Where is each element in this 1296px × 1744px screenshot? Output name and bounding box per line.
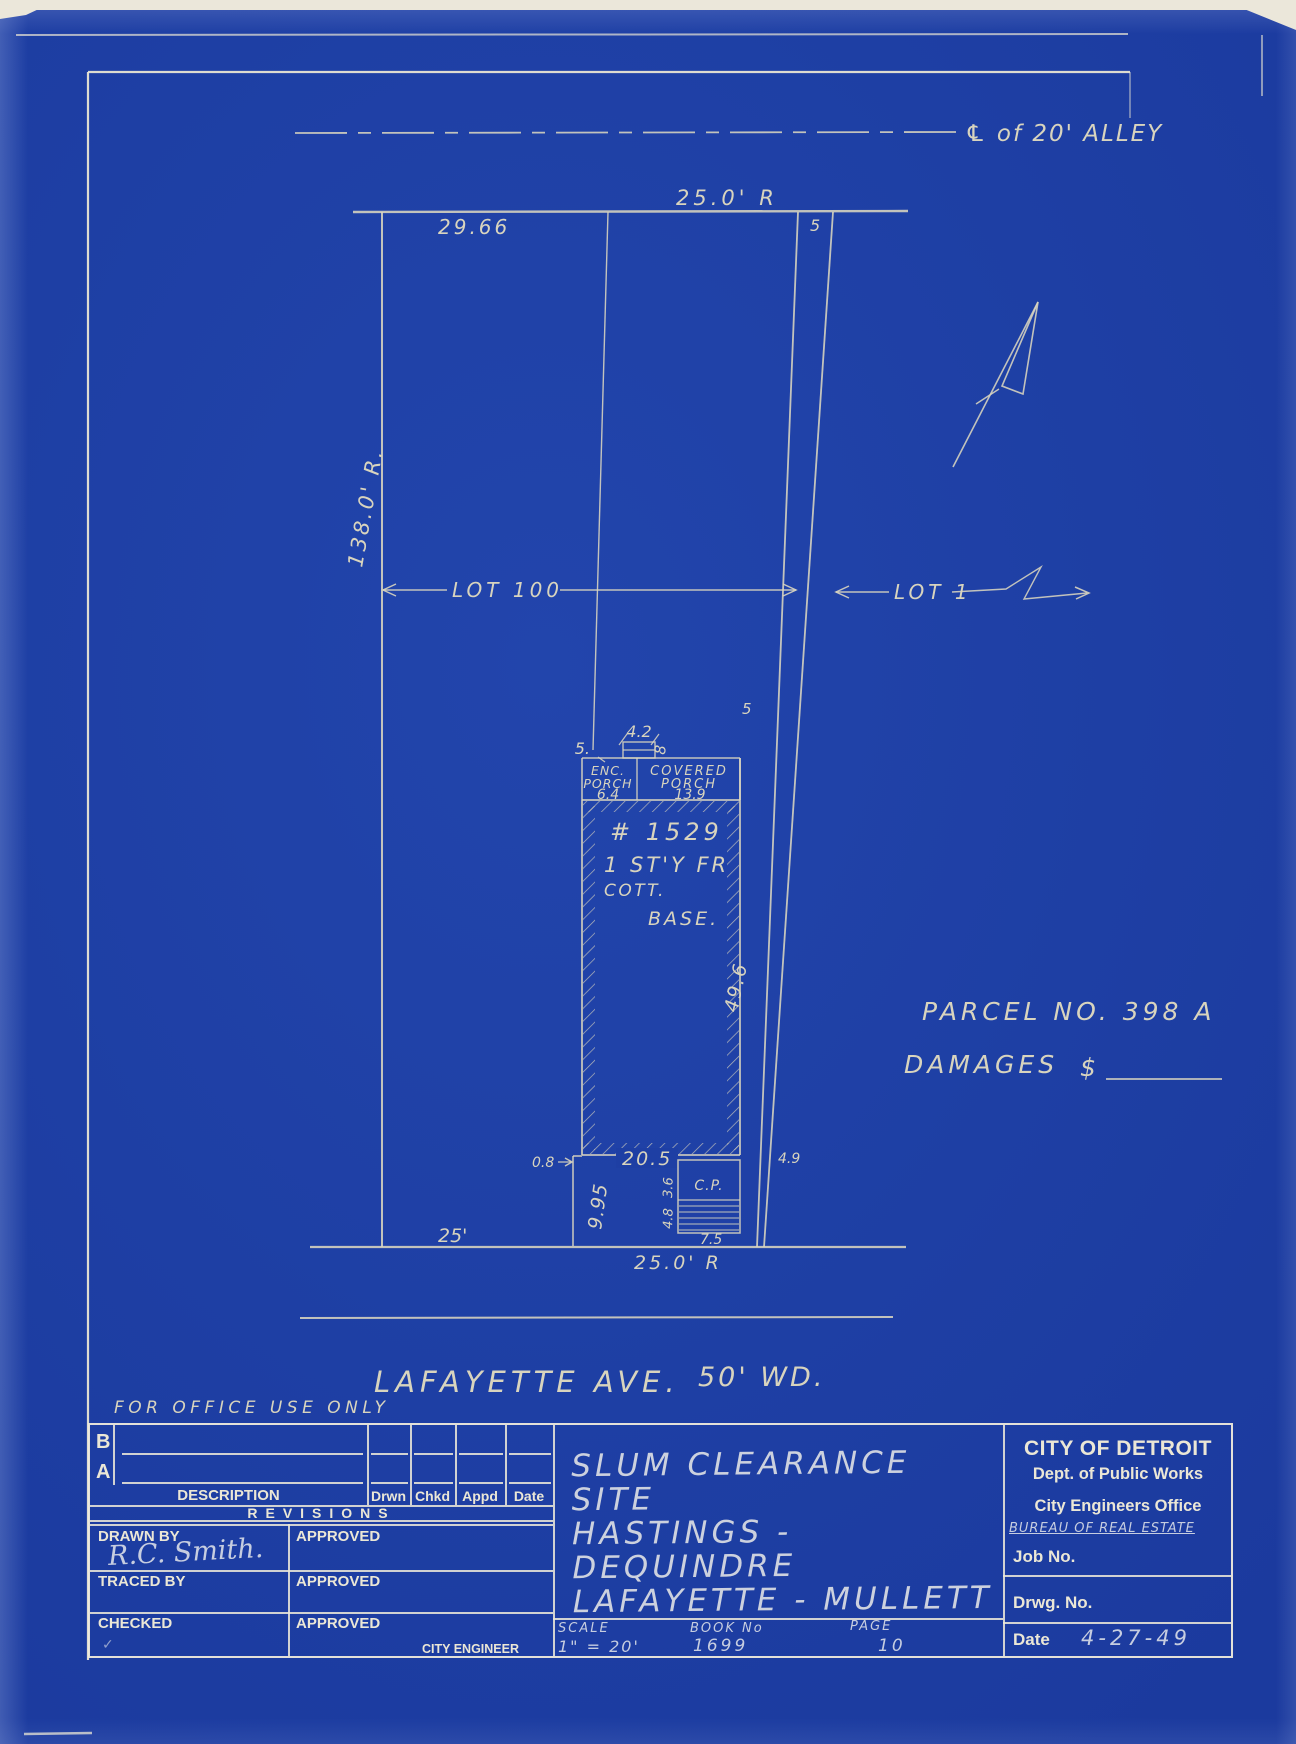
col-date: Date bbox=[505, 1488, 553, 1504]
office-use-note: FOR OFFICE USE ONLY bbox=[114, 1398, 390, 1418]
org-city: CITY OF DETROIT bbox=[1003, 1437, 1233, 1461]
street-name: LAFAYETTE AVE. bbox=[374, 1365, 680, 1399]
basement-label: BASE. bbox=[648, 908, 719, 930]
page-label: PAGE bbox=[850, 1619, 892, 1634]
drawing-title-line-2: HASTINGS - DEQUINDRE bbox=[572, 1513, 1003, 1585]
extension-depth-dim: 9.95 bbox=[584, 1182, 612, 1231]
tb-rev-b-cell-2 bbox=[414, 1453, 453, 1455]
scale-label: SCALE bbox=[558, 1621, 610, 1636]
street-width: 50' WD. bbox=[698, 1362, 825, 1393]
alley-label: ℄ of 20' ALLEY bbox=[965, 121, 1163, 147]
approved-label-2: APPROVED bbox=[296, 1573, 380, 1590]
story-label: 1 ST'Y FR bbox=[604, 853, 729, 877]
lot100-label: LOT 100 bbox=[452, 578, 563, 602]
rear-porch-box bbox=[678, 1160, 740, 1233]
tb-revisions-line-2 bbox=[90, 1524, 553, 1526]
alley-centerline bbox=[295, 132, 958, 133]
dim-offset-top: 29.66 bbox=[438, 215, 510, 239]
gap-right-dim: 4.9 bbox=[778, 1151, 800, 1167]
tb-rev-b-writeline bbox=[122, 1453, 363, 1455]
bay-width-dim: 4.2 bbox=[626, 722, 651, 741]
scale-value: 1" = 20' bbox=[558, 1637, 640, 1656]
tb-approved-divider bbox=[288, 1524, 290, 1656]
tb-divider-left-center bbox=[553, 1425, 555, 1656]
scan-edge-top bbox=[6, 0, 1294, 10]
dim-width-top: 25.0' R bbox=[676, 186, 778, 210]
book-value: 1699 bbox=[693, 1636, 748, 1656]
tb-rev-a-cell-2 bbox=[414, 1482, 453, 1484]
tb-rev-a-cell-1 bbox=[371, 1482, 408, 1484]
revisions-header: REVISIONS bbox=[90, 1505, 553, 1521]
dim-line-lot1-zigzag bbox=[952, 567, 1087, 599]
drawing-title: SLUM CLEARANCE SITE HASTINGS - DEQUINDRE… bbox=[571, 1445, 1003, 1619]
drawing-title-line-1: SLUM CLEARANCE SITE bbox=[571, 1445, 1002, 1517]
approved-label-3: APPROVED bbox=[296, 1615, 380, 1632]
rear-porch-dim-1: 3.6 bbox=[661, 1177, 677, 1198]
outer-frame-top-line bbox=[16, 34, 1128, 35]
lot-line-north bbox=[353, 211, 908, 212]
rev-row-b: B bbox=[96, 1431, 110, 1454]
drawing-title-line-3: LAFAYETTE - MULLETT bbox=[573, 1581, 1003, 1620]
tb-rev-b-cell-4 bbox=[509, 1453, 551, 1455]
job-no-label: Job No. bbox=[1013, 1547, 1075, 1567]
org-dept: Dept. of Public Works bbox=[1003, 1465, 1233, 1484]
traced-by-label: TRACED BY bbox=[98, 1573, 186, 1590]
checked-mark: ✓ bbox=[102, 1637, 114, 1653]
city-engineer-label: CITY ENGINEER bbox=[418, 1642, 523, 1656]
wall-left-hatch bbox=[583, 806, 595, 1150]
date-value: 4-27-49 bbox=[1081, 1626, 1191, 1650]
tb-rev-a-cell-3 bbox=[459, 1482, 503, 1484]
rear-porch-width-dim: 7.5 bbox=[700, 1232, 722, 1248]
damages-label: DAMAGES bbox=[904, 1050, 1058, 1079]
tb-rev-b-cell-1 bbox=[371, 1453, 408, 1455]
rev-row-a: A bbox=[96, 1461, 110, 1484]
jog-dim: 0.8 bbox=[532, 1155, 554, 1171]
lot-line-east-outer bbox=[764, 212, 833, 1247]
house-number: # 1529 bbox=[610, 818, 723, 846]
tb-rev-letter-divider bbox=[113, 1425, 115, 1485]
drawn-by-signature: R.C. Smith. bbox=[107, 1533, 264, 1572]
page-value: 10 bbox=[878, 1636, 906, 1656]
tb-rev-b-cell-3 bbox=[459, 1453, 503, 1455]
title-block: B A DESCRIPTION Drwn Chkd Appd Date REVI… bbox=[88, 1423, 1233, 1658]
col-appd: Appd bbox=[455, 1488, 505, 1504]
street-line bbox=[300, 1317, 893, 1318]
north-arrow-head bbox=[1002, 302, 1038, 394]
dim-strip-top: 5 bbox=[810, 216, 820, 235]
lot-half-line bbox=[593, 212, 608, 750]
rear-porch-label: C.P. bbox=[694, 1178, 723, 1194]
damages-currency: $ bbox=[1080, 1053, 1096, 1082]
col-drwn: Drwn bbox=[367, 1488, 410, 1504]
drwg-no-label: Drwg. No. bbox=[1013, 1593, 1092, 1613]
setback-left-dim: 5. bbox=[575, 739, 590, 758]
col-chkd: Chkd bbox=[410, 1488, 455, 1504]
setback-right-dim: 5 bbox=[742, 700, 752, 718]
org-box: CITY OF DETROIT Dept. of Public Works Ci… bbox=[1003, 1425, 1233, 1656]
front-left-dim: 25' bbox=[438, 1225, 467, 1247]
cottage-label: COTT. bbox=[604, 881, 666, 901]
side-depth-dim: 49.6 bbox=[720, 960, 752, 1014]
bay-depth-dim: 8 bbox=[651, 744, 670, 755]
rear-porch-dim-2: 4.8 bbox=[661, 1208, 677, 1229]
rear-width-dim: 20.5 bbox=[622, 1148, 672, 1170]
date-label: Date bbox=[1013, 1630, 1050, 1650]
checked-label: CHECKED bbox=[98, 1615, 172, 1632]
scan-edge-bottom-left bbox=[24, 1733, 92, 1734]
lot-line-east-inner bbox=[757, 212, 798, 1247]
book-label: BOOK No bbox=[690, 1621, 764, 1636]
tb-drawn-bottom bbox=[90, 1570, 553, 1572]
parcel-number: PARCEL NO. 398 A bbox=[922, 997, 1215, 1026]
org-bureau: BUREAU OF REAL ESTATE bbox=[1009, 1521, 1195, 1536]
wall-front-hatch bbox=[583, 801, 739, 812]
tb-rev-a-cell-4 bbox=[509, 1482, 551, 1484]
tb-traced-bottom bbox=[90, 1612, 553, 1614]
tb-rev-a-writeline bbox=[122, 1482, 363, 1484]
dim-width-bottom: 25.0' R bbox=[634, 1252, 722, 1274]
blueprint-sheet: ℄ of 20' ALLEY 25.0' R 29.66 5 138.0' R.… bbox=[0, 0, 1296, 1744]
approved-label-1: APPROVED bbox=[296, 1528, 380, 1545]
org-office: City Engineers Office bbox=[1003, 1497, 1233, 1516]
col-description: DESCRIPTION bbox=[90, 1487, 367, 1504]
